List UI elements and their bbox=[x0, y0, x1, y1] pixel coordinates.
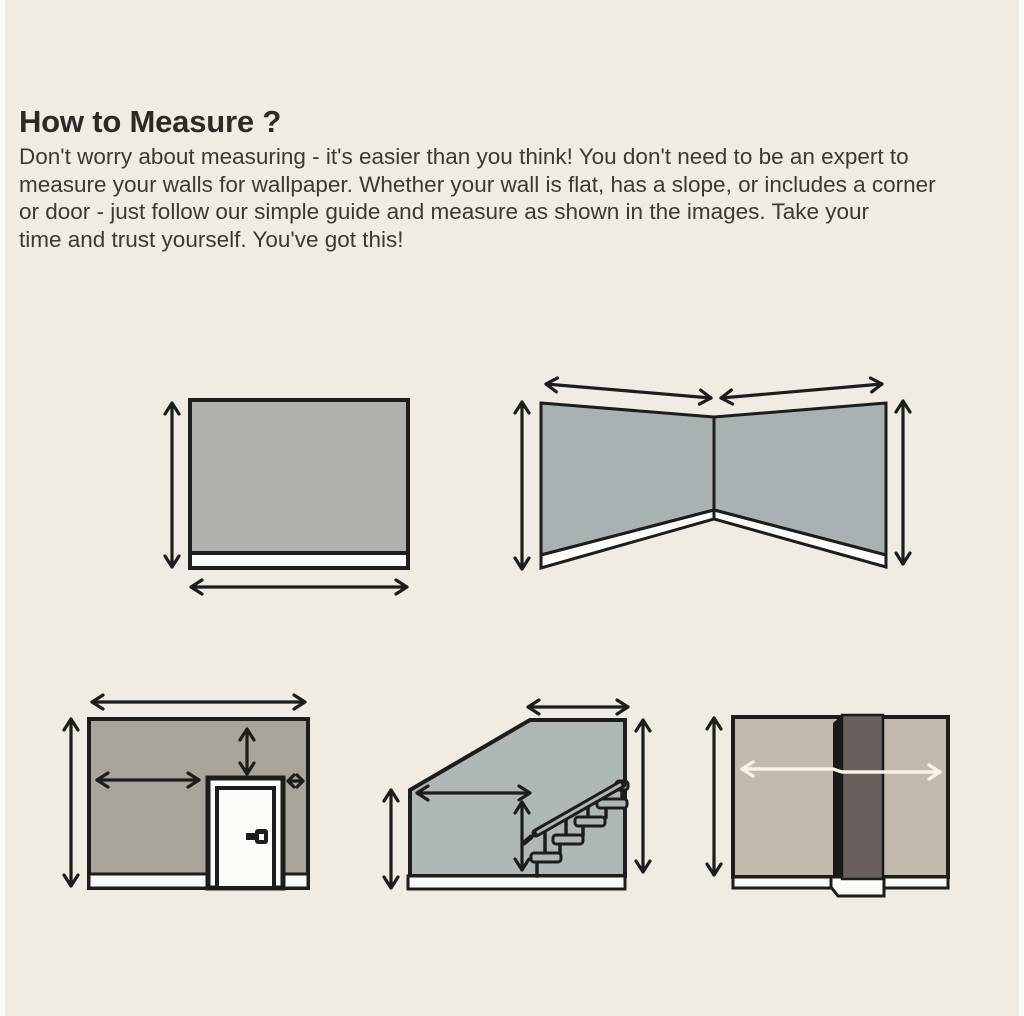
wall-with-pillar-diagram bbox=[707, 715, 948, 896]
pillar-icon bbox=[833, 715, 883, 879]
wall-with-door-diagram bbox=[64, 695, 308, 888]
flat-wall-diagram bbox=[165, 400, 408, 594]
flat-wall bbox=[190, 400, 408, 553]
full-width-arrow bbox=[92, 695, 305, 709]
height-arrow-right bbox=[896, 401, 910, 564]
how-to-measure-page: How to Measure ? Don't worry about measu… bbox=[5, 0, 1019, 1016]
measurement-diagrams bbox=[5, 0, 1019, 1016]
low-side-height-arrow bbox=[384, 790, 398, 888]
sloped-wall-staircase-diagram bbox=[384, 700, 650, 889]
height-arrow bbox=[64, 719, 78, 886]
slope-baseboard bbox=[408, 876, 625, 889]
height-arrow bbox=[707, 718, 721, 875]
full-height-arrow bbox=[636, 720, 650, 872]
height-arrow bbox=[165, 403, 179, 567]
corner-wall-diagram bbox=[515, 377, 910, 569]
width-arrow bbox=[191, 580, 407, 594]
width-arrow-right-wall bbox=[720, 377, 882, 405]
height-arrow-left bbox=[515, 402, 529, 569]
door-baseboard-left bbox=[89, 874, 208, 888]
door-baseboard-right bbox=[283, 874, 308, 888]
top-width-arrow bbox=[528, 700, 628, 714]
width-arrow-left-wall bbox=[545, 377, 711, 405]
